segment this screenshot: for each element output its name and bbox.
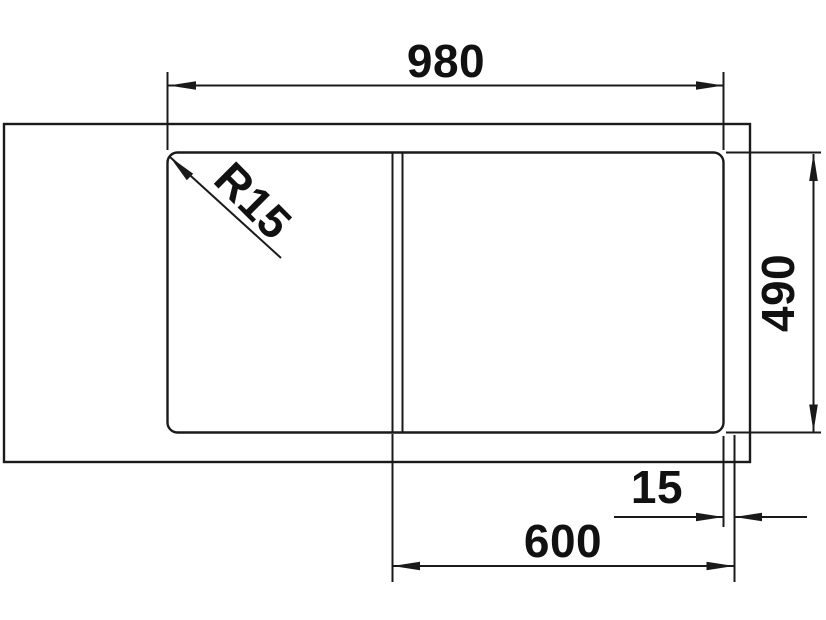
dim-980-arrow-right (696, 81, 724, 90)
dim-490-arrow-top (809, 154, 818, 182)
dim-15-arrow-right (735, 513, 763, 521)
countertop-outline (4, 124, 750, 462)
dim-15-arrow-left (696, 513, 724, 521)
dim-980-arrow-left (169, 81, 197, 90)
dim-600-label: 600 (524, 515, 602, 567)
sink-dimension-drawing: 980 490 R15 15 600 (0, 0, 826, 620)
technical-drawing-canvas: 980 490 R15 15 600 (0, 0, 826, 620)
radius-arrowhead (170, 157, 193, 180)
dim-600-arrow-right (707, 562, 735, 570)
dim-600-arrow-left (393, 562, 421, 570)
dim-490-arrow-bottom (809, 405, 818, 433)
dim-490-label: 490 (752, 254, 804, 332)
dim-980-label: 980 (407, 35, 485, 87)
dim-15-label: 15 (631, 461, 683, 513)
radius-label: R15 (205, 152, 303, 250)
